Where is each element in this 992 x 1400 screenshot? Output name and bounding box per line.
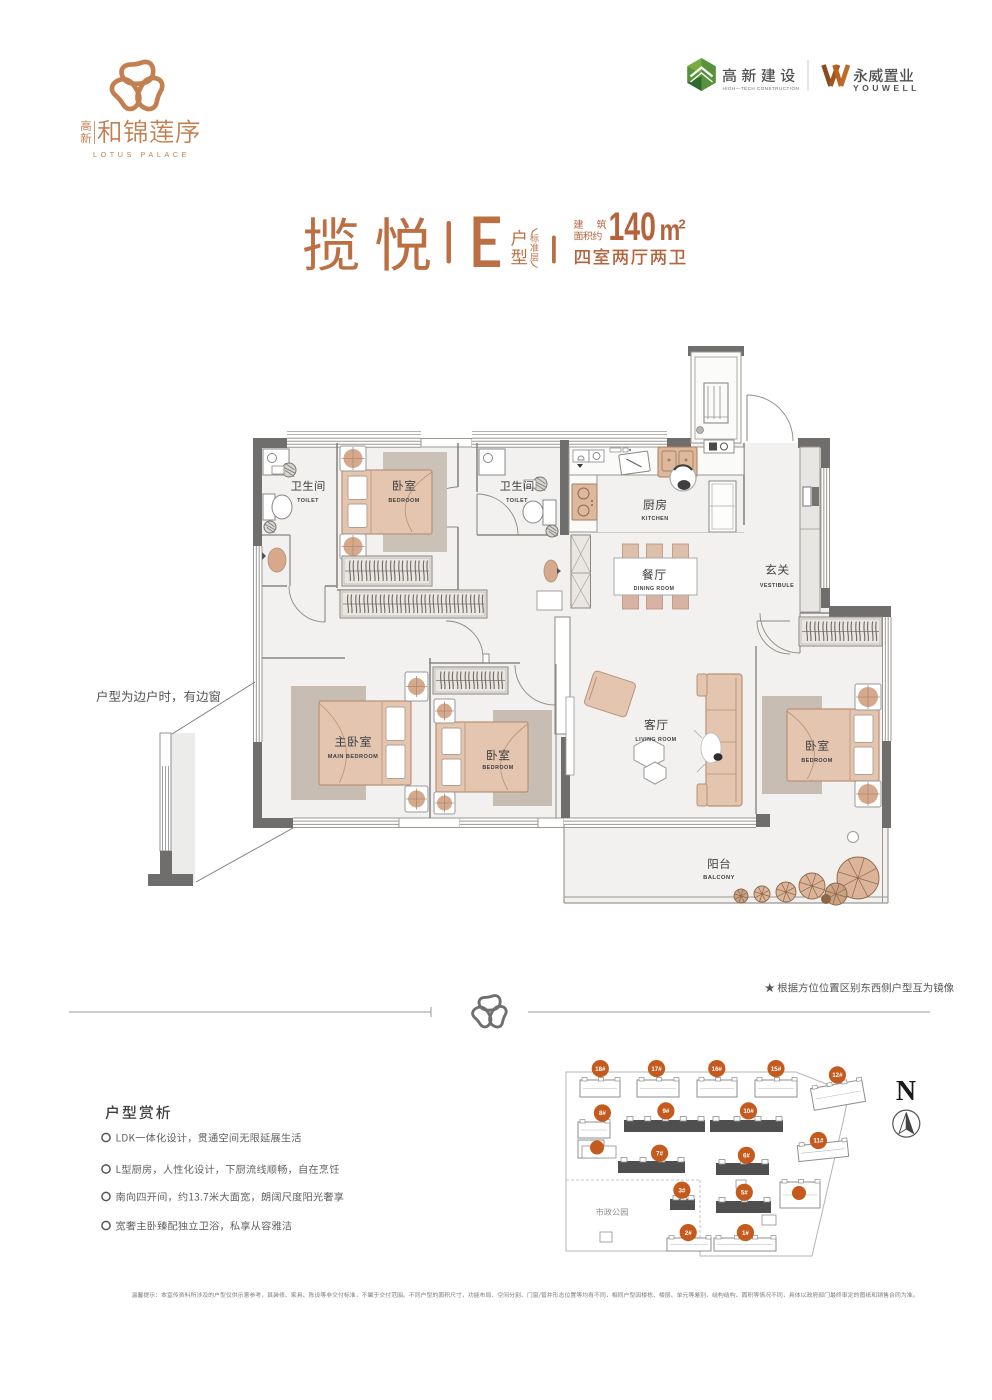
svg-text:2: 2 xyxy=(679,217,686,232)
svg-text:11#: 11# xyxy=(813,1138,824,1145)
svg-text:9#: 9# xyxy=(662,1108,669,1115)
svg-text:TOILET: TOILET xyxy=(506,498,528,504)
svg-text:2#: 2# xyxy=(685,1230,692,1237)
svg-text:BEDROOM: BEDROOM xyxy=(388,498,419,504)
svg-text:VESTIBULE: VESTIBULE xyxy=(760,583,794,589)
svg-text:KITCHEN: KITCHEN xyxy=(641,516,668,522)
svg-text:DINING ROOM: DINING ROOM xyxy=(634,586,675,592)
svg-text:YOUWELL: YOUWELL xyxy=(853,83,920,93)
svg-text:5#: 5# xyxy=(741,1190,748,1197)
svg-text:1#: 1# xyxy=(742,1230,749,1237)
svg-text:BEDROOM: BEDROOM xyxy=(482,765,513,771)
svg-text:16#: 16# xyxy=(712,1066,723,1073)
svg-text:N: N xyxy=(896,1076,916,1107)
svg-text:3#: 3# xyxy=(678,1187,685,1194)
svg-text:6#: 6# xyxy=(743,1153,750,1160)
svg-text:BEDROOM: BEDROOM xyxy=(801,758,832,764)
svg-text:m: m xyxy=(660,213,681,246)
svg-text:17#: 17# xyxy=(651,1066,662,1073)
svg-text:TOILET: TOILET xyxy=(297,498,319,504)
svg-text:15#: 15# xyxy=(771,1066,782,1073)
svg-text:8#: 8# xyxy=(599,1110,606,1117)
svg-text:10#: 10# xyxy=(743,1108,754,1115)
svg-text:140: 140 xyxy=(609,206,656,250)
svg-text:7#: 7# xyxy=(656,1150,663,1157)
svg-text:18#: 18# xyxy=(595,1066,606,1073)
svg-text:LIVING ROOM: LIVING ROOM xyxy=(635,737,676,743)
svg-text:LOTUS PALACE: LOTUS PALACE xyxy=(93,150,190,159)
svg-text:BALCONY: BALCONY xyxy=(703,875,735,881)
svg-text:12#: 12# xyxy=(832,1072,843,1079)
svg-text:HIGH—TECH CONSTRUCTION: HIGH—TECH CONSTRUCTION xyxy=(723,86,800,91)
svg-text:MAIN BEDROOM: MAIN BEDROOM xyxy=(328,754,378,760)
